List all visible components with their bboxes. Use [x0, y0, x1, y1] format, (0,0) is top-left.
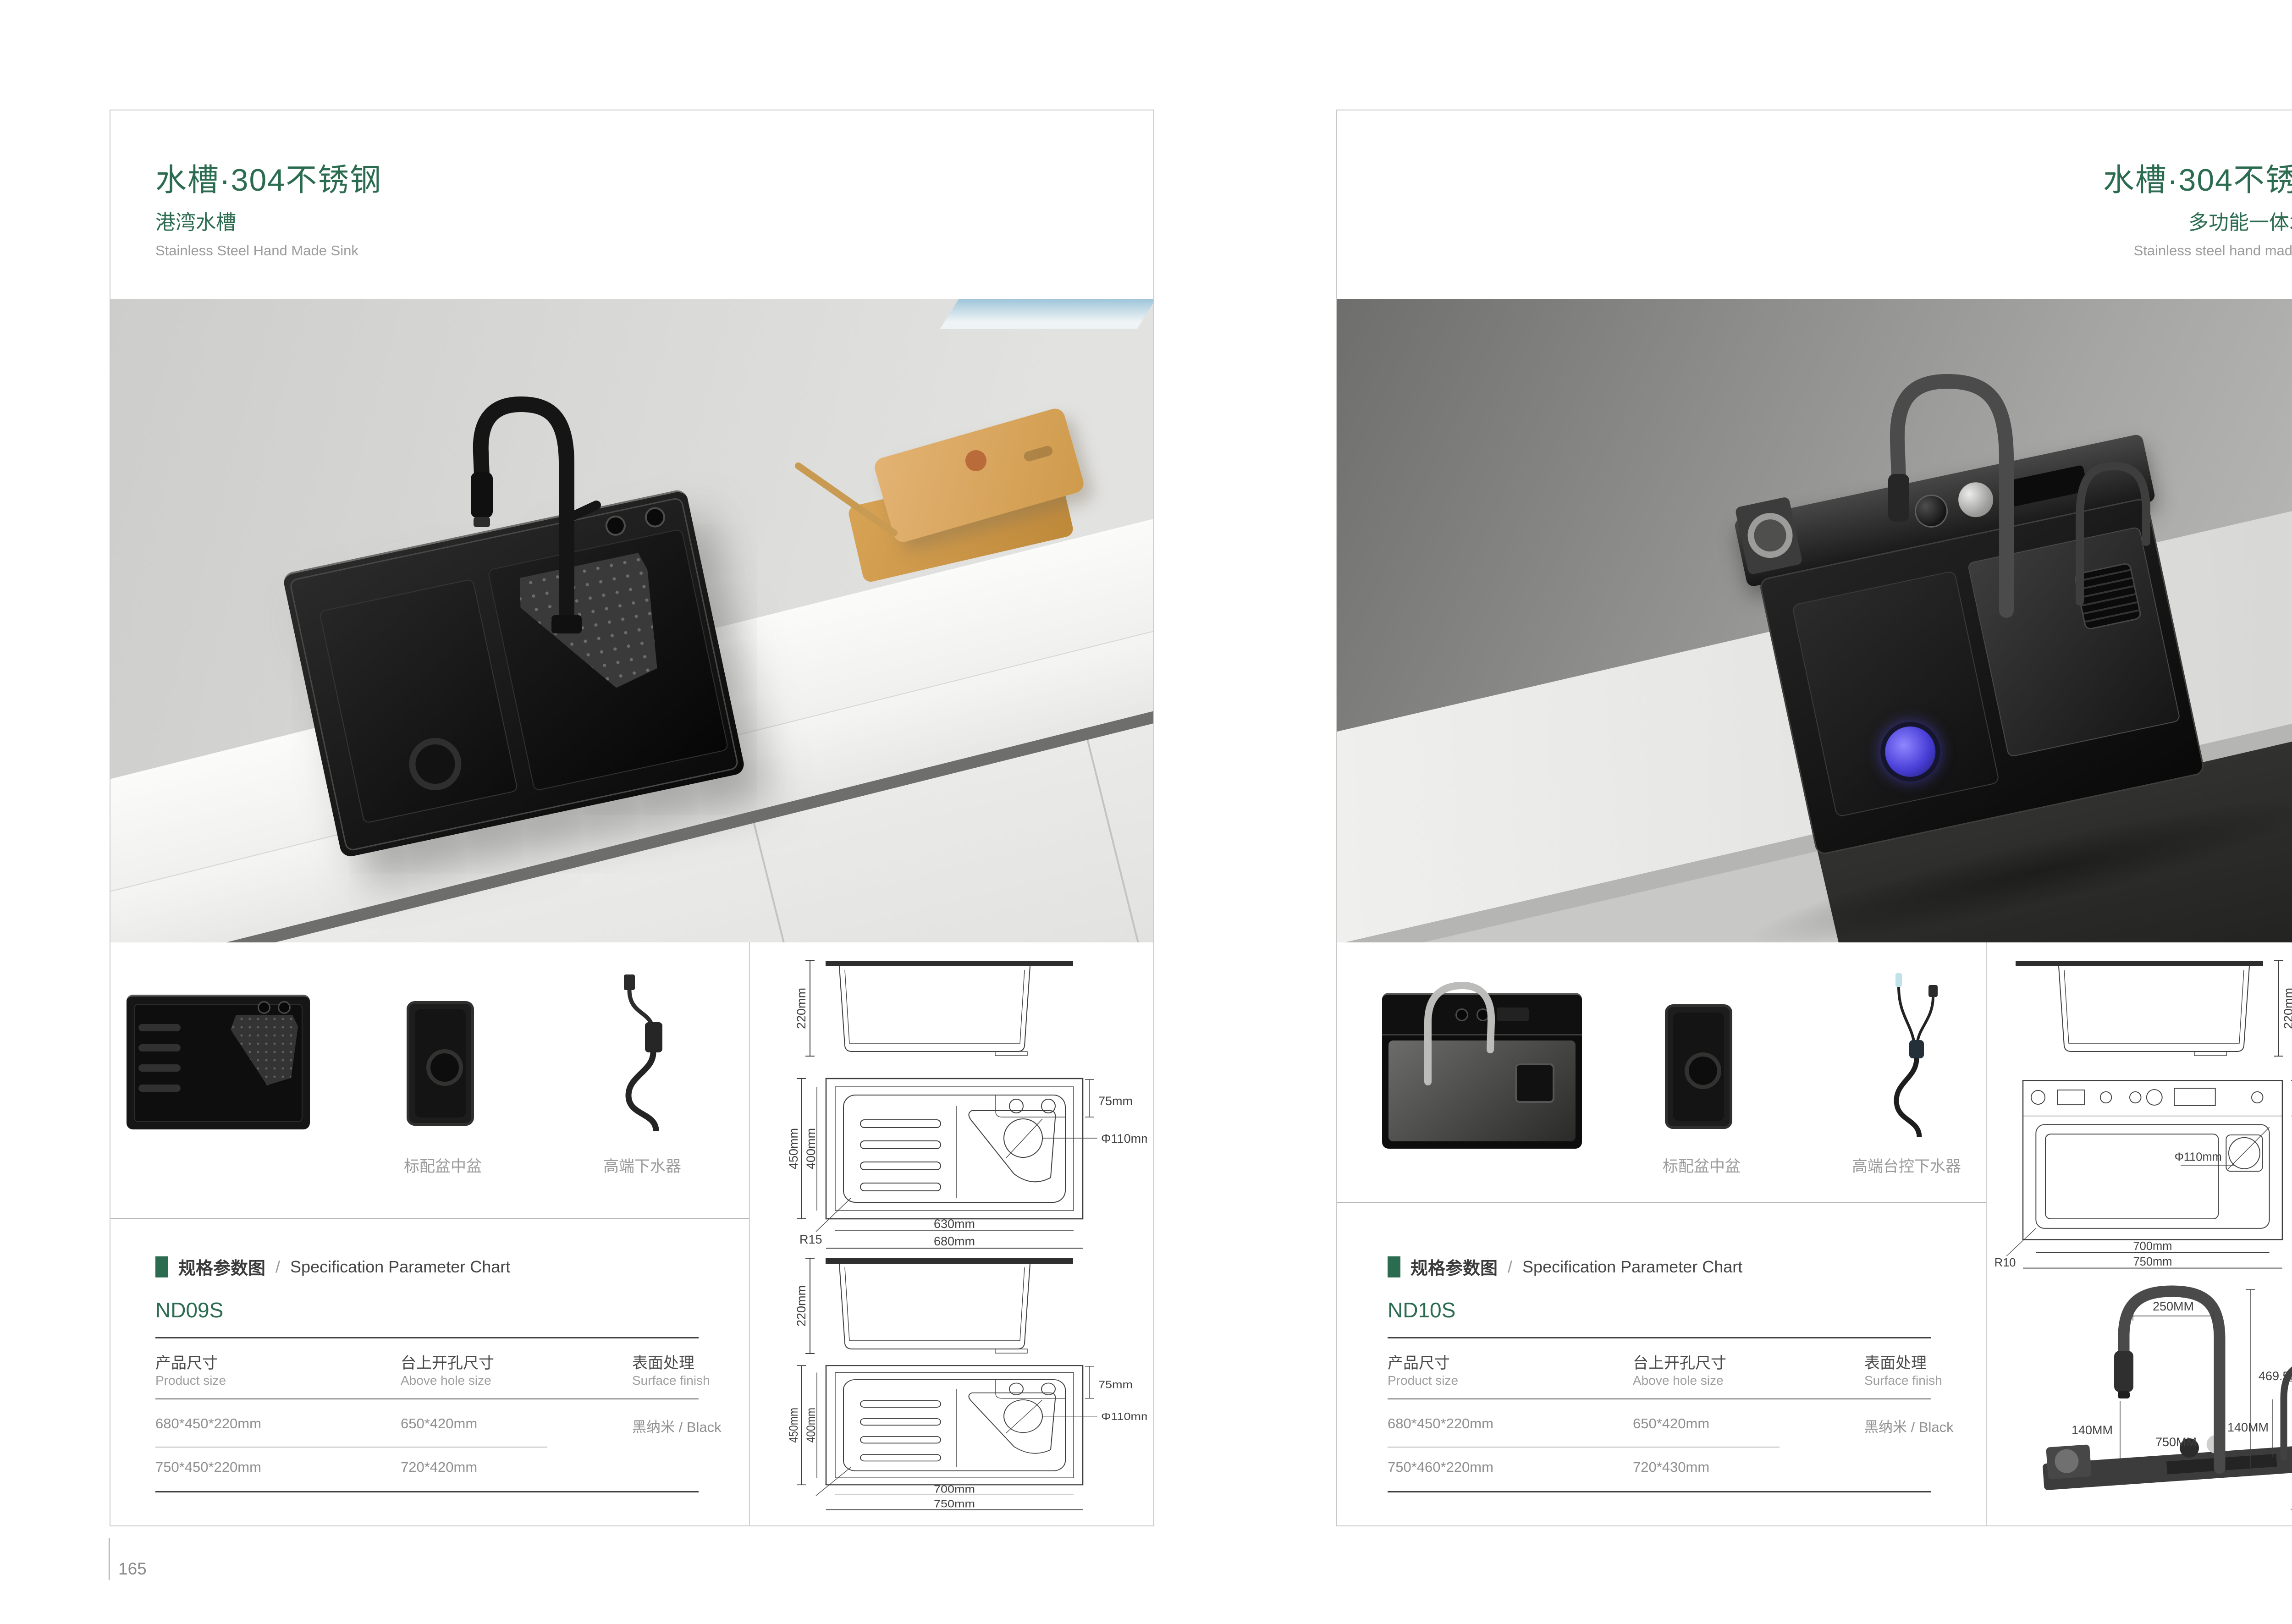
- page-number-left: 165: [118, 1559, 147, 1579]
- svg-text:680mm: 680mm: [934, 1234, 975, 1248]
- rule: [155, 1491, 699, 1492]
- spec-chart-right: 规格参数图 / Specification Parameter Chart ND…: [1388, 1254, 1931, 1497]
- svg-text:450mm: 450mm: [787, 1408, 800, 1443]
- wood-knob: [965, 450, 986, 471]
- green-bullet-icon: [155, 1256, 168, 1277]
- thumb-label-basin: 标配盆中盆: [1626, 1154, 1777, 1176]
- page-subtitle: 港湾水槽: [155, 206, 236, 235]
- drawing-side-view-2: 220mm: [793, 1254, 1087, 1364]
- thumb-rib: [138, 1044, 181, 1051]
- svg-text:75mm: 75mm: [1098, 1379, 1133, 1391]
- spec-value: 720*430mm: [1633, 1459, 1709, 1475]
- thumb-label-basin: 标配盆中盆: [367, 1154, 518, 1176]
- drain-blue: [1875, 716, 1945, 787]
- thumb-label-drain: 高端下水器: [564, 1154, 720, 1176]
- spec-value: 黑纳米 / Black: [1864, 1415, 1954, 1436]
- drawing-side-view-1: 220mm: [793, 956, 1087, 1066]
- svg-text:Φ110mm: Φ110mm: [1101, 1411, 1147, 1423]
- page-right: 水槽·304不锈钢 多功能一体水槽 Stainless steel hand m…: [1336, 110, 2292, 1526]
- faucet-illustration: [445, 368, 642, 643]
- column-divider: [749, 942, 750, 1525]
- svg-text:400mm: 400mm: [804, 1408, 818, 1443]
- col-header-en: Product size: [155, 1373, 226, 1388]
- rule: [155, 1447, 547, 1448]
- thumb-basin-drain: [1685, 1052, 1721, 1089]
- thumb-hole: [278, 1001, 291, 1014]
- col-header-en: Above hole size: [401, 1373, 491, 1388]
- col-header-cn: 台上开孔尺寸: [401, 1350, 494, 1373]
- cabinet-seam: [753, 823, 846, 942]
- sink-drain: [404, 733, 466, 795]
- spec-title-en: Specification Parameter Chart: [1522, 1257, 1742, 1277]
- drawing-plan-multifunction: Φ110mm 80mm 355mm 460mm 700mm 750mm R10: [1993, 1068, 2292, 1279]
- spec-value: 750*450*220mm: [155, 1459, 261, 1475]
- waterfall-outlet: [1743, 509, 1796, 562]
- svg-text:140MM: 140MM: [2227, 1420, 2269, 1434]
- spec-title-cn: 规格参数图: [1410, 1254, 1498, 1279]
- svg-text:Φ110mm: Φ110mm: [2175, 1151, 2222, 1164]
- folio-rule-left: [109, 1538, 110, 1580]
- board-handle-hole: [1023, 445, 1054, 462]
- svg-text:750MM: 750MM: [2155, 1435, 2197, 1449]
- spec-value: 720*420mm: [401, 1459, 477, 1475]
- spec-value: 650*420mm: [1633, 1415, 1709, 1432]
- spec-separator: /: [1508, 1257, 1512, 1277]
- green-bullet-icon: [1388, 1256, 1400, 1277]
- col-header-en: Surface finish: [632, 1373, 710, 1388]
- svg-text:R10: R10: [1994, 1256, 2016, 1269]
- spec-value: 黑纳米 / Black: [632, 1415, 722, 1436]
- cabinet-seam: [1087, 740, 1153, 942]
- thumb-rib: [138, 1024, 181, 1031]
- thumbnail-basin: [1665, 1004, 1732, 1129]
- thumbnail-basin: [407, 1001, 474, 1126]
- svg-text:630mm: 630mm: [934, 1217, 975, 1231]
- thumb-faucet: [1400, 967, 1520, 1086]
- spec-value: 750*460*220mm: [1388, 1459, 1493, 1475]
- page-subtitle: 多功能一体水槽: [2188, 206, 2292, 235]
- hero-photo-left: [110, 299, 1153, 942]
- thumb-rib: [138, 1064, 181, 1072]
- model-number: ND10S: [1388, 1298, 1455, 1322]
- column-divider: [1986, 942, 1987, 1525]
- spec-header: 规格参数图 / Specification Parameter Chart: [1388, 1254, 1742, 1279]
- model-number: ND09S: [155, 1298, 223, 1322]
- rule: [1388, 1491, 1931, 1492]
- faucets-illustration: [1864, 326, 2185, 620]
- spec-header: 规格参数图 / Specification Parameter Chart: [155, 1254, 510, 1279]
- page-subtitle-en: Stainless steel hand made sink: [2134, 242, 2292, 259]
- col-header-cn: 台上开孔尺寸: [1633, 1350, 1726, 1373]
- spec-value: 680*450*220mm: [155, 1415, 261, 1432]
- thumbnail-drain-kit: [605, 973, 687, 1133]
- svg-text:450mm: 450mm: [787, 1128, 800, 1169]
- rule: [155, 1337, 699, 1338]
- col-header-en: Product size: [1388, 1373, 1458, 1388]
- spec-separator: /: [275, 1257, 280, 1277]
- spec-value: 680*450*220mm: [1388, 1415, 1493, 1432]
- svg-text:140MM: 140MM: [2072, 1423, 2113, 1437]
- section-divider: [1337, 1202, 1986, 1203]
- svg-text:400mm: 400mm: [804, 1128, 818, 1169]
- spec-chart-left: 规格参数图 / Specification Parameter Chart ND…: [155, 1254, 699, 1497]
- col-header-cn: 产品尺寸: [1388, 1350, 1450, 1373]
- thumbnail-drain-kit: [1855, 972, 1947, 1142]
- thumbnail-sink-top: [127, 995, 310, 1129]
- waterfall-module: [1735, 496, 1803, 575]
- svg-text:250MM: 250MM: [2153, 1299, 2194, 1313]
- svg-text:700mm: 700mm: [934, 1483, 975, 1495]
- svg-text:220mm: 220mm: [2281, 988, 2292, 1029]
- spec-value: 650*420mm: [401, 1415, 477, 1432]
- page-left: 水槽·304不锈钢 港湾水槽 Stainless Steel Hand Made…: [110, 110, 1154, 1526]
- page-title: 水槽·304不锈钢: [155, 154, 382, 200]
- drawing-side-view: 220mm: [2002, 956, 2292, 1066]
- col-header-cn: 表面处理: [1864, 1350, 1927, 1373]
- svg-text:R15: R15: [799, 1233, 822, 1246]
- drawing-faucet-dimensions: 250MM 469.5MM 140MM 750MM 145MM 140MM 22…: [2016, 1261, 2292, 1522]
- hero-photo-right: [1337, 299, 2292, 942]
- drawing-plan-680: Φ110mm 75mm 450mm 400mm 630mm 680mm R15: [757, 1073, 1147, 1256]
- svg-text:750mm: 750mm: [934, 1498, 975, 1510]
- col-header-cn: 产品尺寸: [155, 1350, 218, 1373]
- page-subtitle-en: Stainless Steel Hand Made Sink: [155, 242, 358, 259]
- svg-text:Φ110mm: Φ110mm: [1101, 1132, 1147, 1145]
- thumb-hole: [258, 1001, 270, 1014]
- svg-text:75mm: 75mm: [1098, 1094, 1133, 1108]
- spec-title-cn: 规格参数图: [178, 1254, 265, 1279]
- section-divider: [110, 1218, 749, 1219]
- col-header-cn: 表面处理: [632, 1350, 694, 1373]
- rule: [155, 1398, 699, 1399]
- col-header-en: Above hole size: [1633, 1373, 1724, 1388]
- thumb-square-drain: [1515, 1063, 1554, 1103]
- page-title: 水槽·304不锈钢: [2103, 154, 2292, 200]
- drawing-plan-750: Φ110mm 75mm 450mm 400mm 700mm 750mm: [757, 1361, 1147, 1517]
- col-header-en: Surface finish: [1864, 1373, 1942, 1388]
- rule: [1388, 1337, 1931, 1338]
- rule: [1388, 1398, 1931, 1399]
- rule: [1388, 1447, 1780, 1448]
- thumb-basin-drain: [426, 1049, 463, 1086]
- thumbnail-sink-top: [1382, 993, 1582, 1149]
- svg-text:700mm: 700mm: [2133, 1240, 2172, 1253]
- svg-text:220mm: 220mm: [794, 1285, 808, 1327]
- thumb-rib: [138, 1085, 181, 1092]
- thumb-label-drain: 高端台控下水器: [1819, 1154, 1994, 1176]
- svg-text:220mm: 220mm: [794, 988, 808, 1029]
- spec-title-en: Specification Parameter Chart: [290, 1257, 510, 1277]
